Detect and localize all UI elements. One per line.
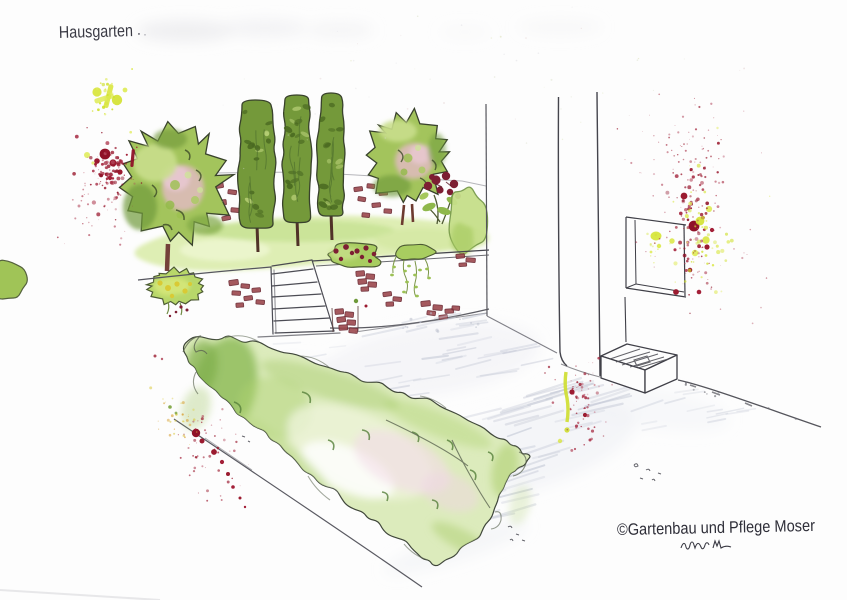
svg-text:Hausgarten: Hausgarten [59,21,133,42]
